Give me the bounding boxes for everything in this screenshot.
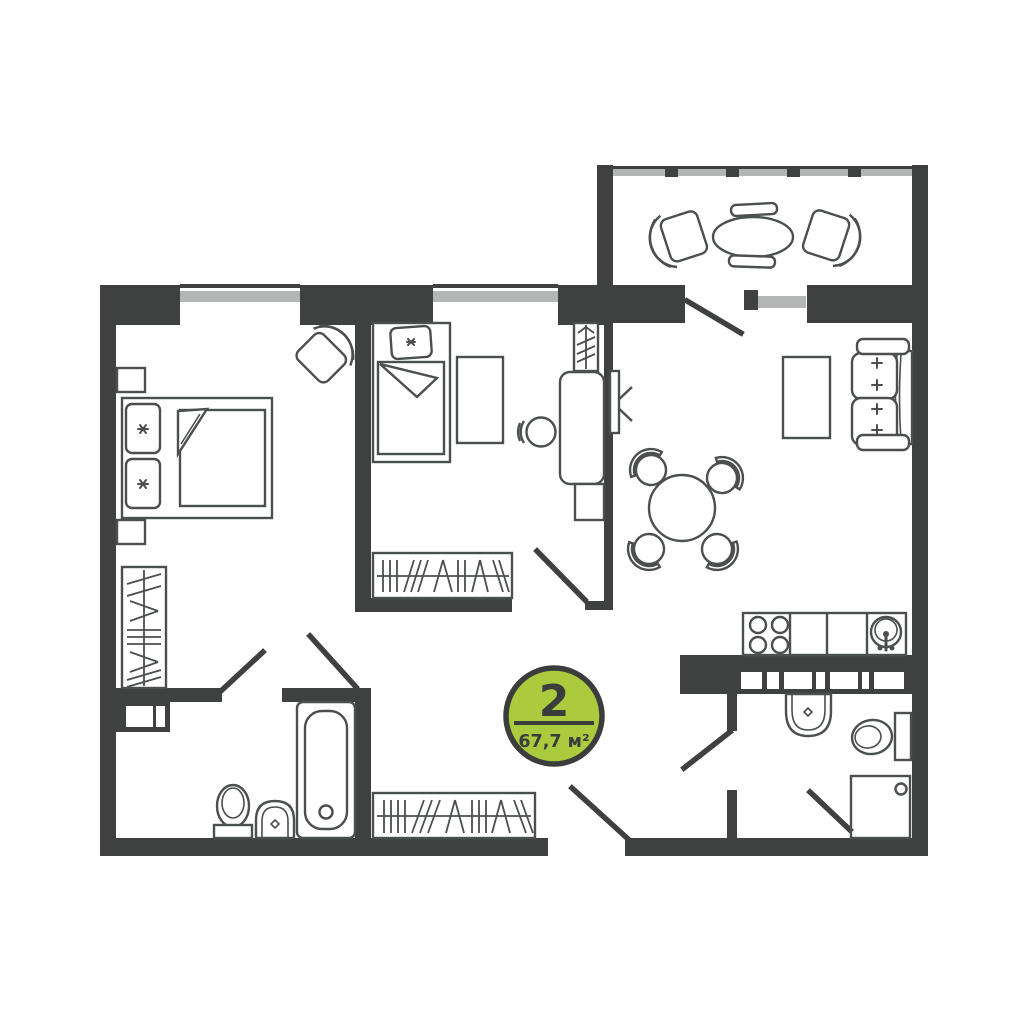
bathroom-1 [214,702,355,838]
balcony [643,203,867,273]
balcony-armchair [800,204,867,272]
toilet-tank [895,713,911,760]
balcony-left-wall [597,165,613,323]
balcony-table [713,217,793,257]
tv-screen [610,371,619,433]
left-bedroom-door-swing [310,636,356,687]
entrance-door-swing [572,788,627,838]
bathroom2-door-swing [684,732,730,768]
toilet-tank [214,825,252,838]
balcony-door-swing [687,301,741,333]
bathroom2-left-wall-upper [727,694,737,731]
bathtub-icon [297,702,355,838]
sofa [852,339,912,450]
balcony-glazing-line [613,166,912,169]
glazing-mullion-2 [726,166,739,177]
shower-door-swing [810,792,850,830]
kitchen-back-wall [680,655,912,670]
top-wall-block-2 [300,285,433,325]
desk [560,372,604,484]
window-1-outer-line [180,284,300,288]
washbasin-icon [786,694,831,736]
wall-shelf [574,323,598,371]
tv-on-wall [610,371,632,433]
toilet-icon [850,713,911,760]
bottom-outer-wall-right [625,838,928,856]
badge-area: 67,7 м² [518,732,589,752]
glazing-mullion-3 [787,166,800,177]
living-room [610,339,912,578]
left-outer-wall [100,285,116,856]
bathroom1-right-wall [355,688,371,838]
glazing-mullion-4 [848,166,861,177]
bathroom-2 [786,694,911,838]
balcony-bench [729,255,775,268]
glazing-mullion-1 [665,166,678,177]
badge-rooms-count: 2 [539,676,570,727]
balcony-armchair [643,205,710,273]
balcony-door-stub [744,290,758,310]
floor-plan: 2 67,7 м² [0,0,1024,1024]
bathroom1-door-swing [222,652,263,690]
bathroom1-top-wall-left [116,688,222,702]
living-left-wall-stub [585,601,613,610]
kitchen [743,613,906,655]
sofa-seat [852,353,897,399]
area-badge: 2 67,7 м² [506,668,602,764]
balcony-divider-left [613,285,685,323]
bathroom2-left-wall-lower [727,790,737,838]
bedside-rug [457,357,503,443]
right-outer-wall [912,165,928,856]
nightstand [117,520,145,544]
bottom-outer-wall-left [100,838,548,856]
wardrobe [373,553,512,598]
desk-cabinet [575,484,604,520]
dining-table [649,475,715,541]
left-bedroom [117,316,363,688]
nightstand [117,368,145,392]
wardrobe [122,567,166,688]
inter-bedroom-wall [355,325,371,612]
living-left-wall [604,325,613,610]
balcony-bench [731,203,778,216]
sideboard [783,357,830,438]
window-1-band [180,291,300,302]
middle-bedroom-bottom-wall [355,598,512,612]
floor-plan-page: 2 67,7 м² [0,0,1024,1024]
sofa-armrest [857,435,909,450]
hallway-wardrobe [373,793,535,838]
shower-icon [851,776,910,838]
balcony-glazing-band [613,169,912,176]
window-2-outer-line [433,284,558,288]
armchair [290,316,363,389]
washbasin-icon [256,801,294,838]
desk-chair [518,418,555,447]
balcony-divider-right [807,285,912,323]
sofa-armrest [857,339,909,354]
middle-bedroom [373,323,604,598]
middle-bedroom-door-swing [537,551,585,600]
balcony-door-threshold [758,296,806,308]
toilet-icon [214,785,252,838]
windows [180,166,912,308]
window-2-band [433,291,558,302]
top-wall-block-1 [100,285,180,325]
